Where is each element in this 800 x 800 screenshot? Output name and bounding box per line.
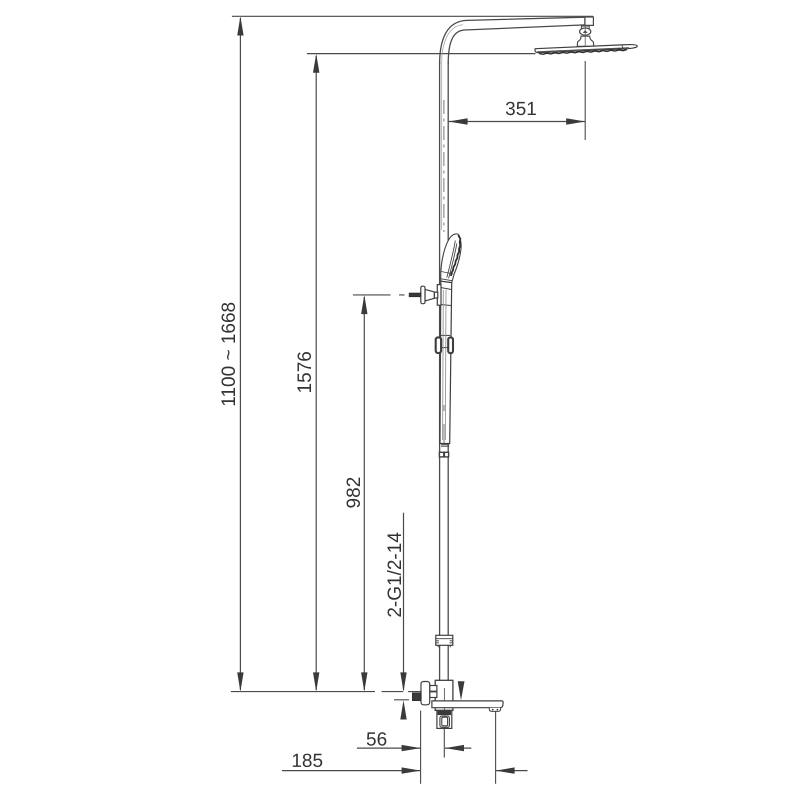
svg-text:1100 ~ 1668: 1100 ~ 1668	[219, 302, 240, 407]
svg-text:2-G1/2-14: 2-G1/2-14	[385, 532, 406, 618]
svg-text:185: 185	[291, 751, 323, 772]
svg-text:351: 351	[505, 99, 537, 120]
svg-text:1576: 1576	[295, 351, 316, 393]
svg-text:982: 982	[344, 477, 365, 509]
svg-text:56: 56	[366, 729, 387, 750]
